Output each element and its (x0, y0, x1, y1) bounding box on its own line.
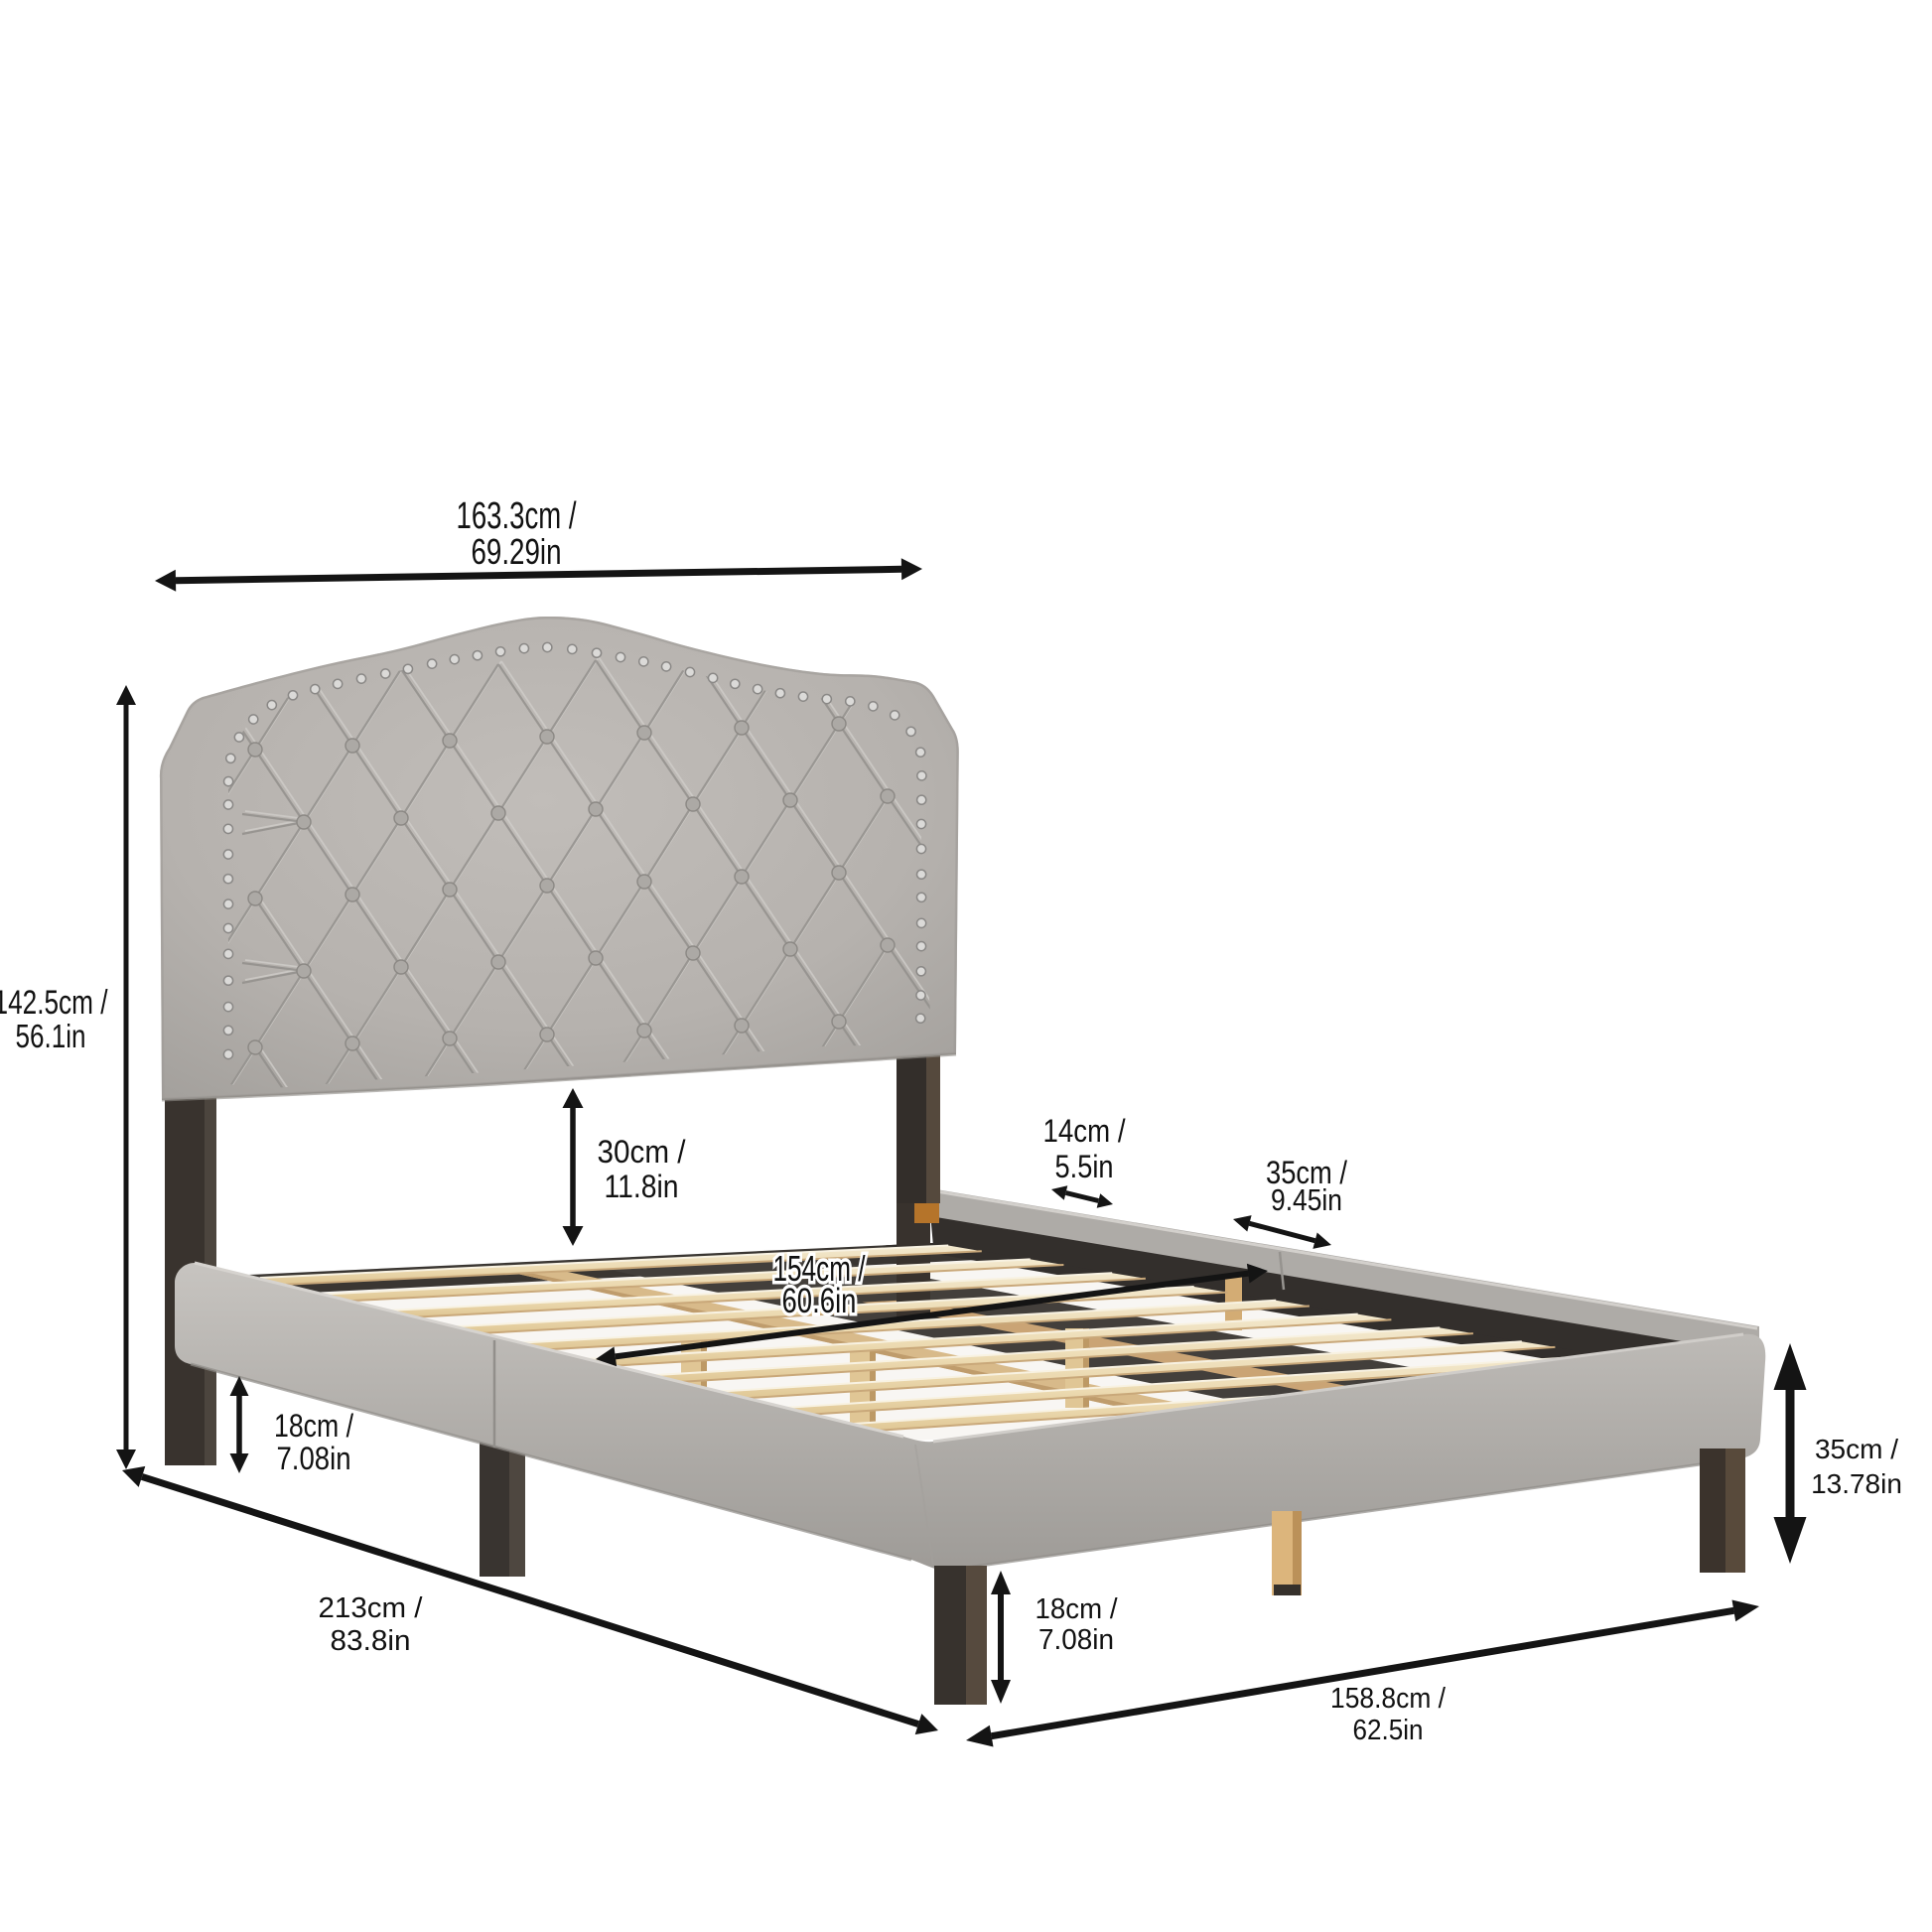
svg-text:7.08in: 7.08in (1038, 1624, 1114, 1656)
svg-text:83.8in: 83.8in (331, 1625, 411, 1657)
svg-text:60.6in: 60.6in (782, 1282, 857, 1320)
svg-text:35cm /: 35cm / (1815, 1434, 1898, 1464)
svg-text:18cm /: 18cm / (1035, 1593, 1119, 1625)
svg-text:213cm /: 213cm / (319, 1592, 424, 1624)
svg-text:69.29in: 69.29in (472, 531, 562, 572)
svg-text:14cm /: 14cm / (1043, 1113, 1126, 1149)
svg-text:9.45in: 9.45in (1271, 1182, 1342, 1217)
svg-text:11.8in: 11.8in (605, 1169, 679, 1204)
svg-text:13.78in: 13.78in (1811, 1468, 1902, 1499)
svg-text:62.5in: 62.5in (1353, 1715, 1424, 1746)
svg-text:158.8cm /: 158.8cm / (1330, 1683, 1447, 1715)
svg-text:18cm /: 18cm / (274, 1408, 353, 1444)
svg-text:5.5in: 5.5in (1055, 1149, 1114, 1184)
svg-text:142.5cm /: 142.5cm / (0, 984, 108, 1022)
svg-text:56.1in: 56.1in (16, 1018, 86, 1054)
svg-text:7.08in: 7.08in (277, 1441, 351, 1476)
svg-text:30cm /: 30cm / (598, 1134, 686, 1170)
